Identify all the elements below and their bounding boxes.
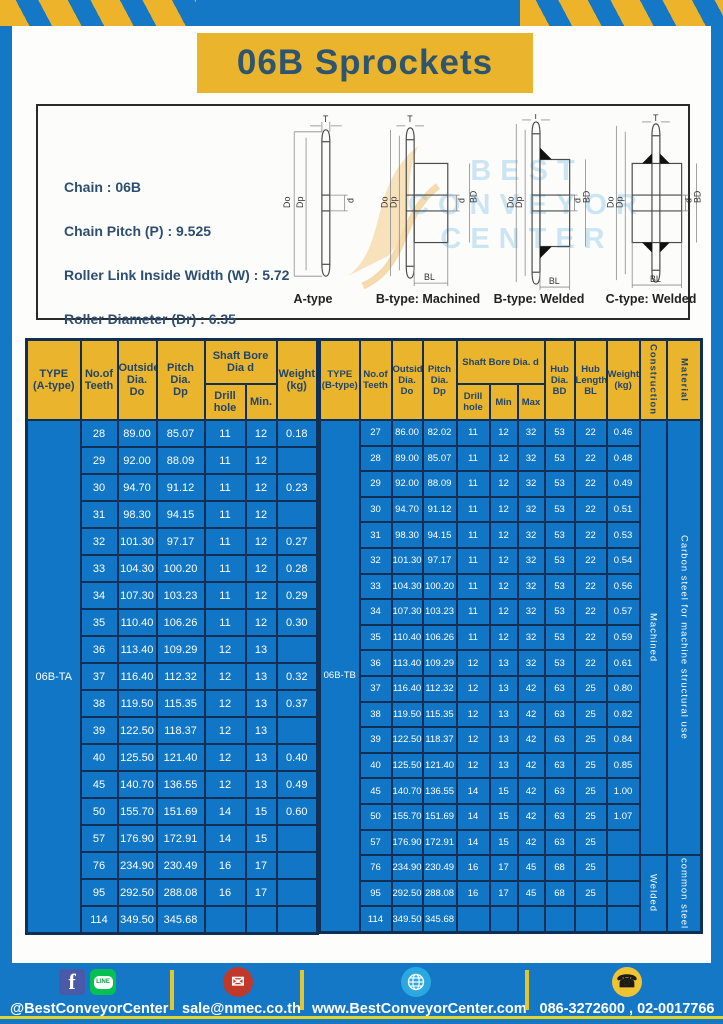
cell: 172.91 <box>157 825 205 852</box>
cell: 57 <box>360 830 392 856</box>
col-weight: Weight (kg) <box>277 340 318 421</box>
cell: 88.09 <box>157 447 205 474</box>
cell: 94.15 <box>423 522 457 548</box>
cell: 16 <box>205 879 246 906</box>
col-outside-dia: Outside Dia. Do <box>392 340 423 421</box>
globe-icon <box>401 967 431 997</box>
cell: 45 <box>81 771 118 798</box>
col-type: TYPE (A-type) <box>27 340 81 421</box>
cell: 94.70 <box>118 474 157 501</box>
cell: 234.90 <box>118 852 157 879</box>
cell: 89.00 <box>392 446 423 472</box>
cell: 11 <box>205 474 246 501</box>
cell: 0.29 <box>277 582 318 609</box>
cell: 345.68 <box>157 906 205 934</box>
cell: 25 <box>575 753 607 779</box>
cell: 28 <box>81 420 118 447</box>
col-pitch-dia: Pitch Dia. Dp <box>157 340 205 421</box>
cell: 349.50 <box>118 906 157 934</box>
col-shaft-bore-group: Shaft Bore Dia d <box>205 340 277 385</box>
cell: 12 <box>490 420 518 446</box>
cell: 11 <box>205 528 246 555</box>
cell: 35 <box>360 625 392 651</box>
cell: 37 <box>360 676 392 702</box>
cell: 30 <box>360 497 392 523</box>
cell: 15 <box>490 778 518 804</box>
cell <box>277 825 318 852</box>
dim-dp: Dp <box>295 197 305 208</box>
cell: 25 <box>575 855 607 881</box>
cell: 100.20 <box>423 574 457 600</box>
cell: 176.90 <box>392 830 423 856</box>
cell: 106.26 <box>157 609 205 636</box>
cell: 114 <box>360 906 392 932</box>
footer-social: f LINE @BestConveyorCenter <box>10 966 165 1017</box>
a-type-label: A-type <box>248 292 378 306</box>
cell: 68 <box>545 881 575 907</box>
cell: 31 <box>360 522 392 548</box>
line-icon-label: LINE <box>94 976 113 989</box>
cell: 118.37 <box>423 727 457 753</box>
cell: 230.49 <box>157 852 205 879</box>
cell: 13 <box>490 727 518 753</box>
cell: 17 <box>490 855 518 881</box>
cell: 349.50 <box>392 906 423 932</box>
construction-cell: Machined <box>640 420 667 855</box>
cell: 17 <box>490 881 518 907</box>
cell: 12 <box>205 771 246 798</box>
cell: 0.82 <box>607 702 640 728</box>
cell: 13 <box>490 702 518 728</box>
cell: 25 <box>575 830 607 856</box>
cell <box>575 906 607 932</box>
cell: 13 <box>490 650 518 676</box>
cell: 122.50 <box>392 727 423 753</box>
cell: 11 <box>457 625 490 651</box>
col-shaft-bore-group: Shaft Bore Dia. d <box>457 340 545 385</box>
col-construction: Construction <box>640 340 667 421</box>
cell: 151.69 <box>423 804 457 830</box>
cell <box>277 717 318 744</box>
b-type-table-header: TYPE (B-type) No.of Teeth Outside Dia. D… <box>320 340 702 421</box>
cell: 151.69 <box>157 798 205 825</box>
dim-t: T <box>323 114 329 124</box>
cell: 116.40 <box>392 676 423 702</box>
cell: 230.49 <box>423 855 457 881</box>
cell: 32 <box>518 599 545 625</box>
cell: 121.40 <box>157 744 205 771</box>
cell: 11 <box>457 471 490 497</box>
cell: 63 <box>545 727 575 753</box>
cell: 98.30 <box>392 522 423 548</box>
cell: 125.50 <box>118 744 157 771</box>
cell: 53 <box>545 650 575 676</box>
cell: 25 <box>575 676 607 702</box>
dim-bd: BD <box>692 191 701 203</box>
cell: 106.26 <box>423 625 457 651</box>
cell: 50 <box>360 804 392 830</box>
cell: 0.27 <box>277 528 318 555</box>
dim-dp: Dp <box>514 197 524 208</box>
a-type-diagram: T Do Dp d <box>260 114 365 292</box>
cell: 22 <box>575 650 607 676</box>
cell: 15 <box>246 798 277 825</box>
cell: 28 <box>360 446 392 472</box>
cell: 12 <box>457 727 490 753</box>
cell: 12 <box>490 522 518 548</box>
page-title: 06B Sprockets <box>197 33 533 93</box>
cell: 63 <box>545 778 575 804</box>
cell: 63 <box>545 753 575 779</box>
cell: 140.70 <box>392 778 423 804</box>
cell <box>277 906 318 934</box>
cell: 121.40 <box>423 753 457 779</box>
cell: 0.84 <box>607 727 640 753</box>
cell: 95 <box>360 881 392 907</box>
col-hub-dia: Hub Dia. BD <box>545 340 575 421</box>
cell <box>518 906 545 932</box>
cell: 45 <box>518 881 545 907</box>
cell <box>607 830 640 856</box>
cell: 11 <box>457 420 490 446</box>
cell: 0.30 <box>277 609 318 636</box>
cell: 155.70 <box>118 798 157 825</box>
cell: 86.00 <box>392 420 423 446</box>
cell: 27 <box>360 420 392 446</box>
cell: 32 <box>81 528 118 555</box>
cell: 15 <box>490 830 518 856</box>
cell: 15 <box>490 804 518 830</box>
cell: 12 <box>490 625 518 651</box>
cell: 22 <box>575 446 607 472</box>
cell: 92.00 <box>118 447 157 474</box>
col-outside-dia: Outside Dia. Do <box>118 340 157 421</box>
cell: 12 <box>205 663 246 690</box>
cell: 14 <box>205 798 246 825</box>
cell: 22 <box>575 497 607 523</box>
col-max: Max <box>518 384 545 420</box>
cell: 38 <box>360 702 392 728</box>
footer-separator <box>170 970 174 1010</box>
cell: 0.28 <box>277 555 318 582</box>
cell: 40 <box>360 753 392 779</box>
cell: 115.35 <box>423 702 457 728</box>
table-row: 76234.90230.491617456825Weldedcommon ste… <box>320 855 702 881</box>
cell: 32 <box>360 548 392 574</box>
cell <box>607 906 640 932</box>
cell: 42 <box>518 727 545 753</box>
b-type-machined-diagram: T Do Dp d BD BL <box>376 114 481 292</box>
cell: 30 <box>81 474 118 501</box>
cell: 97.17 <box>157 528 205 555</box>
cell: 94.15 <box>157 501 205 528</box>
cell: 11 <box>457 497 490 523</box>
cell: 0.56 <box>607 574 640 600</box>
email-icon: ✉ <box>223 967 253 997</box>
cell: 63 <box>545 702 575 728</box>
cell: 53 <box>545 446 575 472</box>
cell: 85.07 <box>423 446 457 472</box>
cell: 11 <box>205 420 246 447</box>
cell: 11 <box>457 548 490 574</box>
cell: 32 <box>518 446 545 472</box>
cell <box>277 852 318 879</box>
b-type-welded-diagram: T Do Dp d BD BL <box>486 114 591 292</box>
dim-bd: BD <box>468 191 478 203</box>
cell: 12 <box>457 676 490 702</box>
cell: 11 <box>205 555 246 582</box>
cell: 11 <box>205 447 246 474</box>
cell: 0.49 <box>277 771 318 798</box>
cell: 63 <box>545 676 575 702</box>
cell: 12 <box>457 650 490 676</box>
cell: 12 <box>457 702 490 728</box>
cell: 118.37 <box>157 717 205 744</box>
cell: 39 <box>360 727 392 753</box>
cell: 53 <box>545 471 575 497</box>
dim-t: T <box>653 114 659 123</box>
cell: 11 <box>457 574 490 600</box>
cell: 13 <box>246 717 277 744</box>
dim-t: T <box>407 114 413 124</box>
cell: 104.30 <box>392 574 423 600</box>
cell <box>246 906 277 934</box>
cell: 109.29 <box>157 636 205 663</box>
cell: 0.40 <box>277 744 318 771</box>
cell: 38 <box>81 690 118 717</box>
construction-cell: Welded <box>640 855 667 932</box>
cell: 13 <box>490 753 518 779</box>
cell: 103.23 <box>423 599 457 625</box>
cell: 288.08 <box>423 881 457 907</box>
line-icon: LINE <box>90 969 116 995</box>
cell: 14 <box>457 830 490 856</box>
cell: 122.50 <box>118 717 157 744</box>
c-type-welded-diagram: T Do Dp d BD BL <box>596 114 701 292</box>
cell: 42 <box>518 830 545 856</box>
cell <box>607 855 640 881</box>
cell: 0.60 <box>277 798 318 825</box>
b-type-table: TYPE (B-type) No.of Teeth Outside Dia. D… <box>318 338 703 934</box>
spec-line: Chain Pitch (P) : 9.525 <box>64 220 289 242</box>
dim-bd: BD <box>581 191 591 203</box>
col-min: Min. <box>246 384 277 420</box>
cell: 33 <box>81 555 118 582</box>
cell: 63 <box>545 830 575 856</box>
cell: 0.23 <box>277 474 318 501</box>
col-drill-hole: Drill hole <box>205 384 246 420</box>
cell: 140.70 <box>118 771 157 798</box>
dim-dp: Dp <box>388 197 398 208</box>
cell: 29 <box>81 447 118 474</box>
cell: 11 <box>205 609 246 636</box>
dim-bl: BL <box>424 272 435 282</box>
cell: 16 <box>457 881 490 907</box>
cell: 25 <box>575 778 607 804</box>
cell: 36 <box>81 636 118 663</box>
spec-line: Chain : 06B <box>64 176 289 198</box>
cell: 22 <box>575 574 607 600</box>
cell: 14 <box>457 804 490 830</box>
col-min: Min <box>490 384 518 420</box>
spec-line: Roller Link Inside Width (W) : 5.72 <box>64 264 289 286</box>
cell: 12 <box>205 690 246 717</box>
cell: 12 <box>457 753 490 779</box>
type-cell: 06B-TB <box>320 420 360 932</box>
cell: 112.32 <box>423 676 457 702</box>
c-type-welded-label: C-type: Welded <box>586 292 716 306</box>
cell: 34 <box>360 599 392 625</box>
cell: 0.46 <box>607 420 640 446</box>
cell: 12 <box>490 548 518 574</box>
cell: 22 <box>575 471 607 497</box>
cell: 22 <box>575 548 607 574</box>
cell: 0.32 <box>277 663 318 690</box>
footer-phone: ☎ 086-3272600 , 02-0017766 <box>537 966 717 1017</box>
cell: 32 <box>518 420 545 446</box>
cell: 112.32 <box>157 663 205 690</box>
material-cell: Carbon steel for machine structural use <box>667 420 702 855</box>
cell: 292.50 <box>392 881 423 907</box>
footer-separator <box>300 970 304 1010</box>
dim-bl: BL <box>650 274 661 284</box>
cell: 12 <box>246 474 277 501</box>
cell: 116.40 <box>118 663 157 690</box>
col-hub-length: Hub Length BL <box>575 340 607 421</box>
cell: 136.55 <box>157 771 205 798</box>
cell: 42 <box>518 753 545 779</box>
cell: 32 <box>518 471 545 497</box>
cell <box>277 447 318 474</box>
cell: 33 <box>360 574 392 600</box>
cell: 176.90 <box>118 825 157 852</box>
cell: 0.48 <box>607 446 640 472</box>
cell: 14 <box>457 778 490 804</box>
cell: 89.00 <box>118 420 157 447</box>
cell: 76 <box>81 852 118 879</box>
cell: 32 <box>518 548 545 574</box>
cell: 0.59 <box>607 625 640 651</box>
cell: 32 <box>518 650 545 676</box>
cell <box>205 906 246 934</box>
cell: 12 <box>205 717 246 744</box>
cell: 13 <box>246 771 277 798</box>
cell: 17 <box>246 852 277 879</box>
col-teeth: No.of Teeth <box>81 340 118 421</box>
cell: 11 <box>457 446 490 472</box>
cell: 101.30 <box>118 528 157 555</box>
cell: 100.20 <box>157 555 205 582</box>
cell: 12 <box>490 471 518 497</box>
cell: 0.80 <box>607 676 640 702</box>
cell: 12 <box>490 574 518 600</box>
cell: 15 <box>246 825 277 852</box>
cell: 12 <box>246 555 277 582</box>
cell <box>607 881 640 907</box>
cell: 0.51 <box>607 497 640 523</box>
cell: 103.23 <box>157 582 205 609</box>
col-drill-hole: Drill hole <box>457 384 490 420</box>
cell: 13 <box>246 636 277 663</box>
cell: 34 <box>81 582 118 609</box>
cell: 32 <box>518 625 545 651</box>
cell: 107.30 <box>118 582 157 609</box>
cell: 16 <box>205 852 246 879</box>
cell: 12 <box>246 609 277 636</box>
cell: 14 <box>205 825 246 852</box>
cell: 82.02 <box>423 420 457 446</box>
cell: 76 <box>360 855 392 881</box>
website-url: www.BestConveyorCenter.com <box>312 1001 520 1017</box>
cell: 101.30 <box>392 548 423 574</box>
cell: 0.18 <box>277 420 318 447</box>
cell: 53 <box>545 625 575 651</box>
b-type-welded-label: B-type: Welded <box>474 292 604 306</box>
cell: 0.85 <box>607 753 640 779</box>
facebook-icon: f <box>59 969 85 995</box>
cell: 0.61 <box>607 650 640 676</box>
cell: 42 <box>518 778 545 804</box>
cell <box>277 636 318 663</box>
cell <box>457 906 490 932</box>
cell: 12 <box>246 447 277 474</box>
cell: 11 <box>205 582 246 609</box>
cell: 53 <box>545 574 575 600</box>
cell: 42 <box>518 702 545 728</box>
social-handle: @BestConveyorCenter <box>10 1001 165 1017</box>
cell: 234.90 <box>392 855 423 881</box>
cell: 104.30 <box>118 555 157 582</box>
cell: 155.70 <box>392 804 423 830</box>
cell: 25 <box>575 727 607 753</box>
col-material: Material <box>667 340 702 421</box>
cell: 97.17 <box>423 548 457 574</box>
a-type-table: TYPE (A-type) No.of Teeth Outside Dia. D… <box>25 338 319 935</box>
cell: 22 <box>575 599 607 625</box>
email-address: sale@nmec.co.th <box>182 1001 294 1017</box>
cell: 39 <box>81 717 118 744</box>
cell: 50 <box>81 798 118 825</box>
cell: 0.37 <box>277 690 318 717</box>
cell: 63 <box>545 804 575 830</box>
cell: 12 <box>490 599 518 625</box>
spec-line: Roller Diameter (Dr) : 6.35 <box>64 308 289 330</box>
cell: 11 <box>457 599 490 625</box>
cell: 12 <box>205 636 246 663</box>
cell: 11 <box>457 522 490 548</box>
cell: 1.07 <box>607 804 640 830</box>
cell: 53 <box>545 522 575 548</box>
cell: 136.55 <box>423 778 457 804</box>
cell: 45 <box>360 778 392 804</box>
cell <box>545 906 575 932</box>
cell: 13 <box>246 744 277 771</box>
cell: 16 <box>457 855 490 881</box>
cell: 53 <box>545 548 575 574</box>
hazard-stripes-left <box>0 0 196 26</box>
cell: 22 <box>575 420 607 446</box>
cell: 42 <box>518 676 545 702</box>
cell: 25 <box>575 881 607 907</box>
dim-do: Do <box>282 197 292 208</box>
cell: 25 <box>575 804 607 830</box>
cell: 29 <box>360 471 392 497</box>
footer-email: ✉ sale@nmec.co.th <box>182 966 294 1017</box>
cell: 345.68 <box>423 906 457 932</box>
cell: 45 <box>518 855 545 881</box>
cell: 53 <box>545 497 575 523</box>
phone-icon: ☎ <box>612 967 642 997</box>
